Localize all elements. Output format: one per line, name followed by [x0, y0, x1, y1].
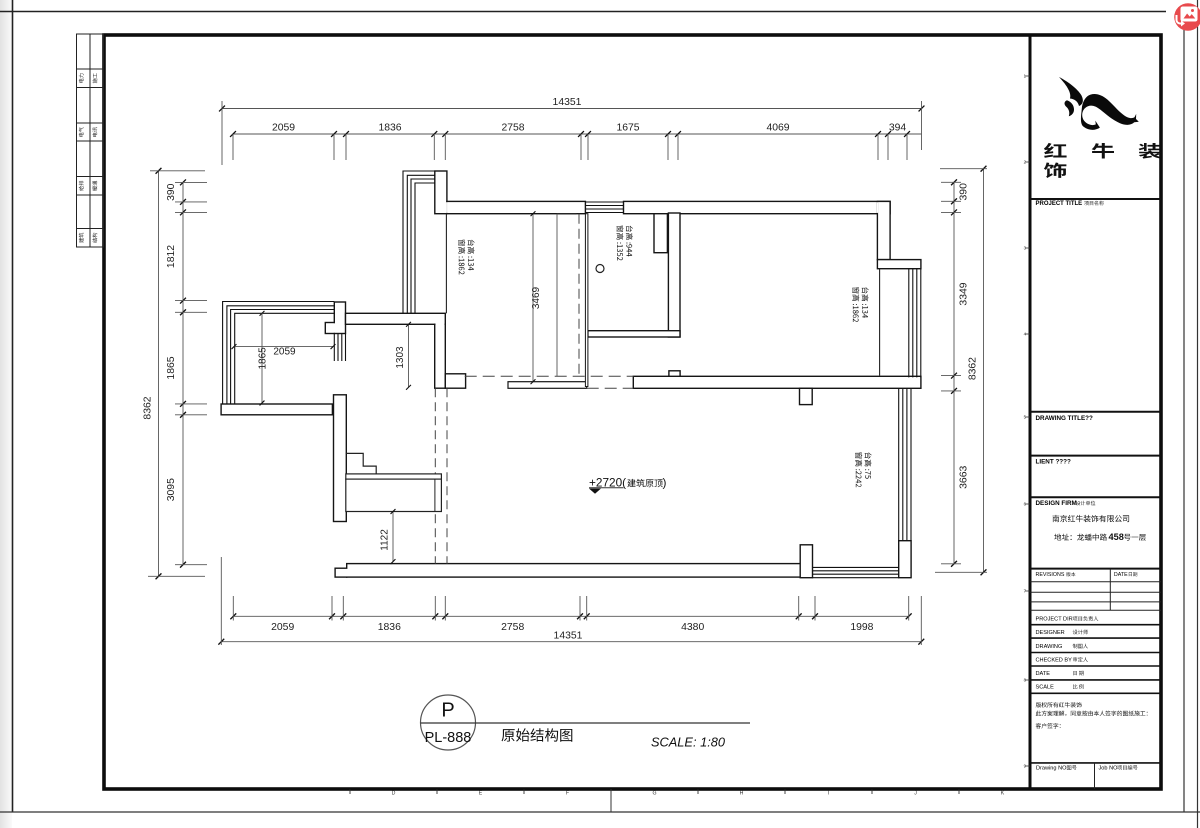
svg-text:E: E — [479, 791, 483, 797]
svg-text:2059: 2059 — [272, 123, 295, 134]
svg-text:J: J — [914, 791, 917, 797]
svg-text:LIENT ????: LIENT ???? — [1036, 459, 1071, 466]
svg-text:DESIGN FIRM: DESIGN FIRM — [1036, 500, 1077, 507]
svg-text:390: 390 — [959, 183, 970, 201]
svg-text:SCALE: 1:80: SCALE: 1:80 — [651, 735, 726, 750]
svg-text:390: 390 — [166, 183, 177, 201]
svg-text:1122: 1122 — [380, 529, 391, 551]
svg-text:SCALE: SCALE — [1036, 685, 1055, 691]
svg-text:3469: 3469 — [531, 286, 542, 309]
svg-text:Job NO: Job NO — [1099, 766, 1119, 772]
svg-text:PROJECT TITLE: PROJECT TITLE — [1036, 201, 1083, 207]
svg-text:2059: 2059 — [271, 622, 294, 633]
svg-text:DRAWING TITLE??: DRAWING TITLE?? — [1036, 415, 1094, 422]
svg-text:REVISIONS: REVISIONS — [1036, 572, 1065, 578]
svg-text:PROJECT DIR: PROJECT DIR — [1036, 617, 1073, 623]
svg-text:458: 458 — [1109, 532, 1124, 542]
svg-text:CHECKED BY: CHECKED BY — [1036, 658, 1073, 664]
svg-text:): ) — [663, 476, 667, 490]
svg-text:D: D — [392, 791, 396, 797]
svg-text:4380: 4380 — [681, 622, 704, 633]
svg-text:8362: 8362 — [143, 396, 154, 419]
svg-text:1812: 1812 — [166, 245, 177, 268]
svg-text:2059: 2059 — [273, 347, 296, 358]
svg-text:PL-888: PL-888 — [425, 730, 472, 746]
svg-text:K: K — [1001, 791, 1005, 797]
svg-text:1998: 1998 — [850, 622, 873, 633]
svg-text:DATE: DATE — [1036, 671, 1051, 677]
svg-text:G: G — [652, 791, 656, 797]
svg-text:3095: 3095 — [166, 478, 177, 501]
svg-text:8362: 8362 — [968, 357, 979, 380]
svg-text:14351: 14351 — [553, 97, 582, 108]
svg-text:DRAWING: DRAWING — [1036, 644, 1063, 650]
svg-text:1836: 1836 — [378, 123, 401, 134]
svg-text:P: P — [441, 700, 454, 722]
svg-text:4069: 4069 — [766, 123, 789, 134]
svg-text:1675: 1675 — [616, 123, 639, 134]
svg-text:14351: 14351 — [554, 631, 583, 642]
svg-text:3663: 3663 — [959, 466, 970, 489]
svg-text:I: I — [828, 791, 829, 797]
svg-text:2758: 2758 — [501, 123, 524, 134]
svg-text:Drawing NO: Drawing NO — [1036, 766, 1067, 772]
svg-text:1865: 1865 — [258, 347, 269, 370]
svg-text:3349: 3349 — [959, 282, 970, 305]
svg-text:DATE: DATE — [1114, 572, 1128, 578]
svg-text:2758: 2758 — [501, 622, 524, 633]
svg-text:1303: 1303 — [395, 346, 406, 369]
svg-text:1865: 1865 — [166, 356, 177, 379]
svg-text:DESIGNER: DESIGNER — [1036, 630, 1065, 636]
svg-text:1836: 1836 — [378, 622, 401, 633]
svg-text:394: 394 — [889, 123, 907, 134]
svg-text:H: H — [740, 791, 744, 797]
svg-text:F: F — [566, 791, 569, 797]
